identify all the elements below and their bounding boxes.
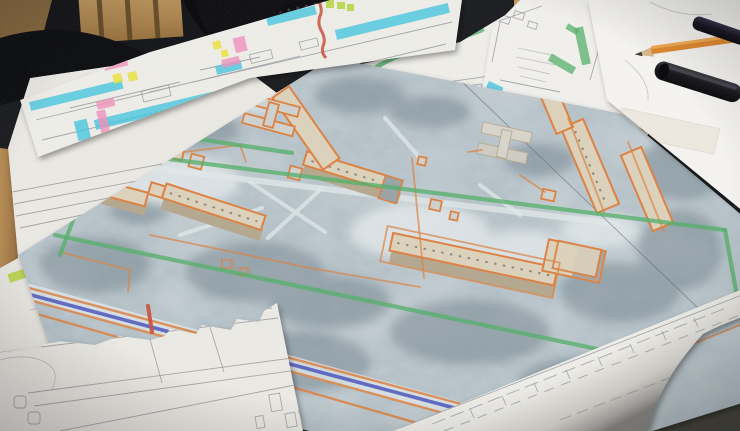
photo-grain [0,0,740,431]
photo-desk-with-plans [0,0,740,431]
scene [0,0,740,431]
